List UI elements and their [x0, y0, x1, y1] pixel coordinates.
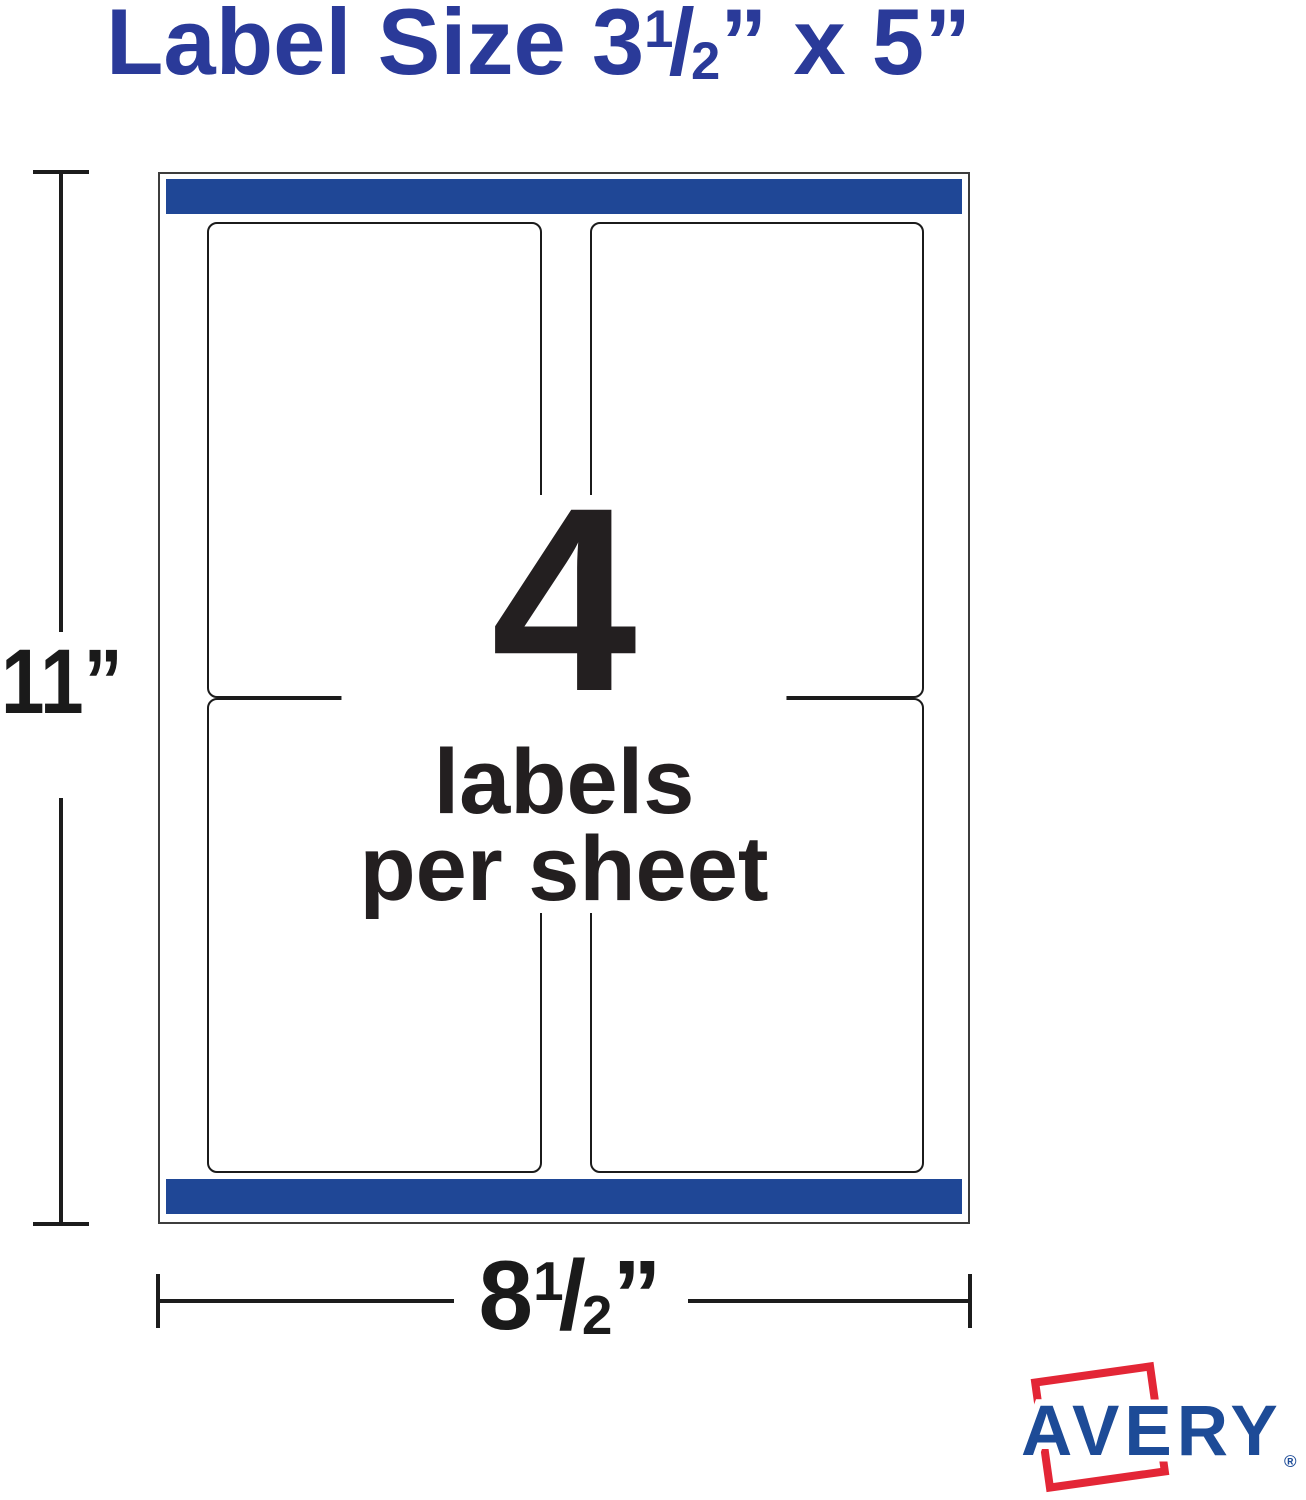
height-dimension-line-lower	[59, 798, 63, 1224]
label-sheet: 4 labels per sheet	[158, 172, 970, 1224]
title-text-after-fraction: ” x 5”	[720, 0, 971, 94]
labels-caption-line1: labels	[359, 739, 768, 826]
avery-logo: AVERY ®	[1003, 1354, 1303, 1500]
page-title: Label Size 31/2” x 5”	[106, 0, 971, 99]
width-value: 8	[479, 1240, 534, 1350]
width-dimension-line-right	[688, 1299, 970, 1303]
labels-caption-line2: per sheet	[359, 826, 768, 913]
width-fraction: 1/2	[533, 1246, 612, 1344]
width-unit-quote: ”	[612, 1240, 661, 1350]
sheet-top-margin-band	[166, 179, 962, 214]
height-dimension-bottom-cap	[33, 1222, 89, 1226]
width-dimension-right-cap	[968, 1274, 972, 1328]
title-text-before-fraction: Label Size 3	[106, 0, 644, 94]
sheet-bottom-margin-band	[166, 1179, 962, 1214]
width-fraction-denominator: 2	[582, 1284, 613, 1346]
product-infographic: Label Size 31/2” x 5” 4 labels per sheet…	[0, 0, 1306, 1500]
title-fraction-denominator: 2	[691, 32, 720, 91]
registered-trademark-symbol: ®	[1284, 1452, 1297, 1471]
avery-wordmark: AVERY	[1021, 1392, 1283, 1471]
width-dimension-label: 81/2”	[430, 1246, 710, 1344]
labels-count: 4	[359, 495, 768, 705]
labels-per-sheet-callout: 4 labels per sheet	[341, 495, 786, 913]
height-dimension-label: 11”	[1, 636, 117, 728]
width-dimension-line-left	[158, 1299, 454, 1303]
title-fraction: 1/2	[644, 0, 720, 99]
height-dimension-line-upper	[59, 172, 63, 632]
